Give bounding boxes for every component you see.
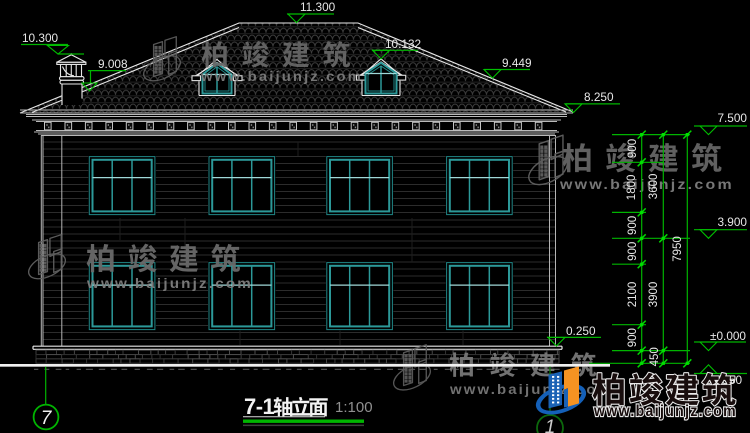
svg-text:900: 900 (627, 328, 639, 347)
svg-text:3900: 3900 (648, 282, 660, 308)
svg-text:50: 50 (729, 373, 743, 387)
svg-text:8.250: 8.250 (584, 90, 614, 104)
svg-text:1: 1 (545, 417, 556, 433)
svg-text:www.baijunjz.com: www.baijunjz.com (200, 68, 363, 84)
svg-text:900: 900 (627, 216, 639, 235)
svg-text:7-1: 7-1 (244, 394, 275, 419)
svg-text:7.500: 7.500 (717, 111, 747, 125)
svg-text:www.baijunjz.com: www.baijunjz.com (449, 381, 613, 397)
svg-text:9.449: 9.449 (502, 56, 532, 70)
svg-text:www.baijunjz.com: www.baijunjz.com (593, 403, 737, 420)
svg-text:900: 900 (627, 139, 639, 158)
svg-text:2100: 2100 (627, 282, 639, 308)
svg-text:10.132: 10.132 (385, 37, 421, 51)
svg-text:11.300: 11.300 (300, 0, 336, 14)
svg-text:1800: 1800 (626, 175, 638, 201)
svg-text:3.900: 3.900 (717, 215, 747, 229)
svg-text:3600: 3600 (648, 174, 660, 200)
svg-text:10.300: 10.300 (22, 31, 59, 45)
svg-text:7: 7 (41, 408, 53, 429)
svg-text:450: 450 (649, 347, 661, 366)
svg-text:±0.000: ±0.000 (710, 329, 746, 343)
svg-text:1:100: 1:100 (335, 399, 373, 416)
svg-text:www.baijunjz.com: www.baijunjz.com (86, 275, 253, 291)
svg-text:0.250: 0.250 (566, 324, 596, 338)
svg-text:9.008: 9.008 (98, 57, 128, 71)
svg-text:www.baijunjz.com: www.baijunjz.com (559, 176, 734, 192)
svg-text:900: 900 (627, 242, 639, 261)
svg-text:7950: 7950 (672, 236, 684, 262)
